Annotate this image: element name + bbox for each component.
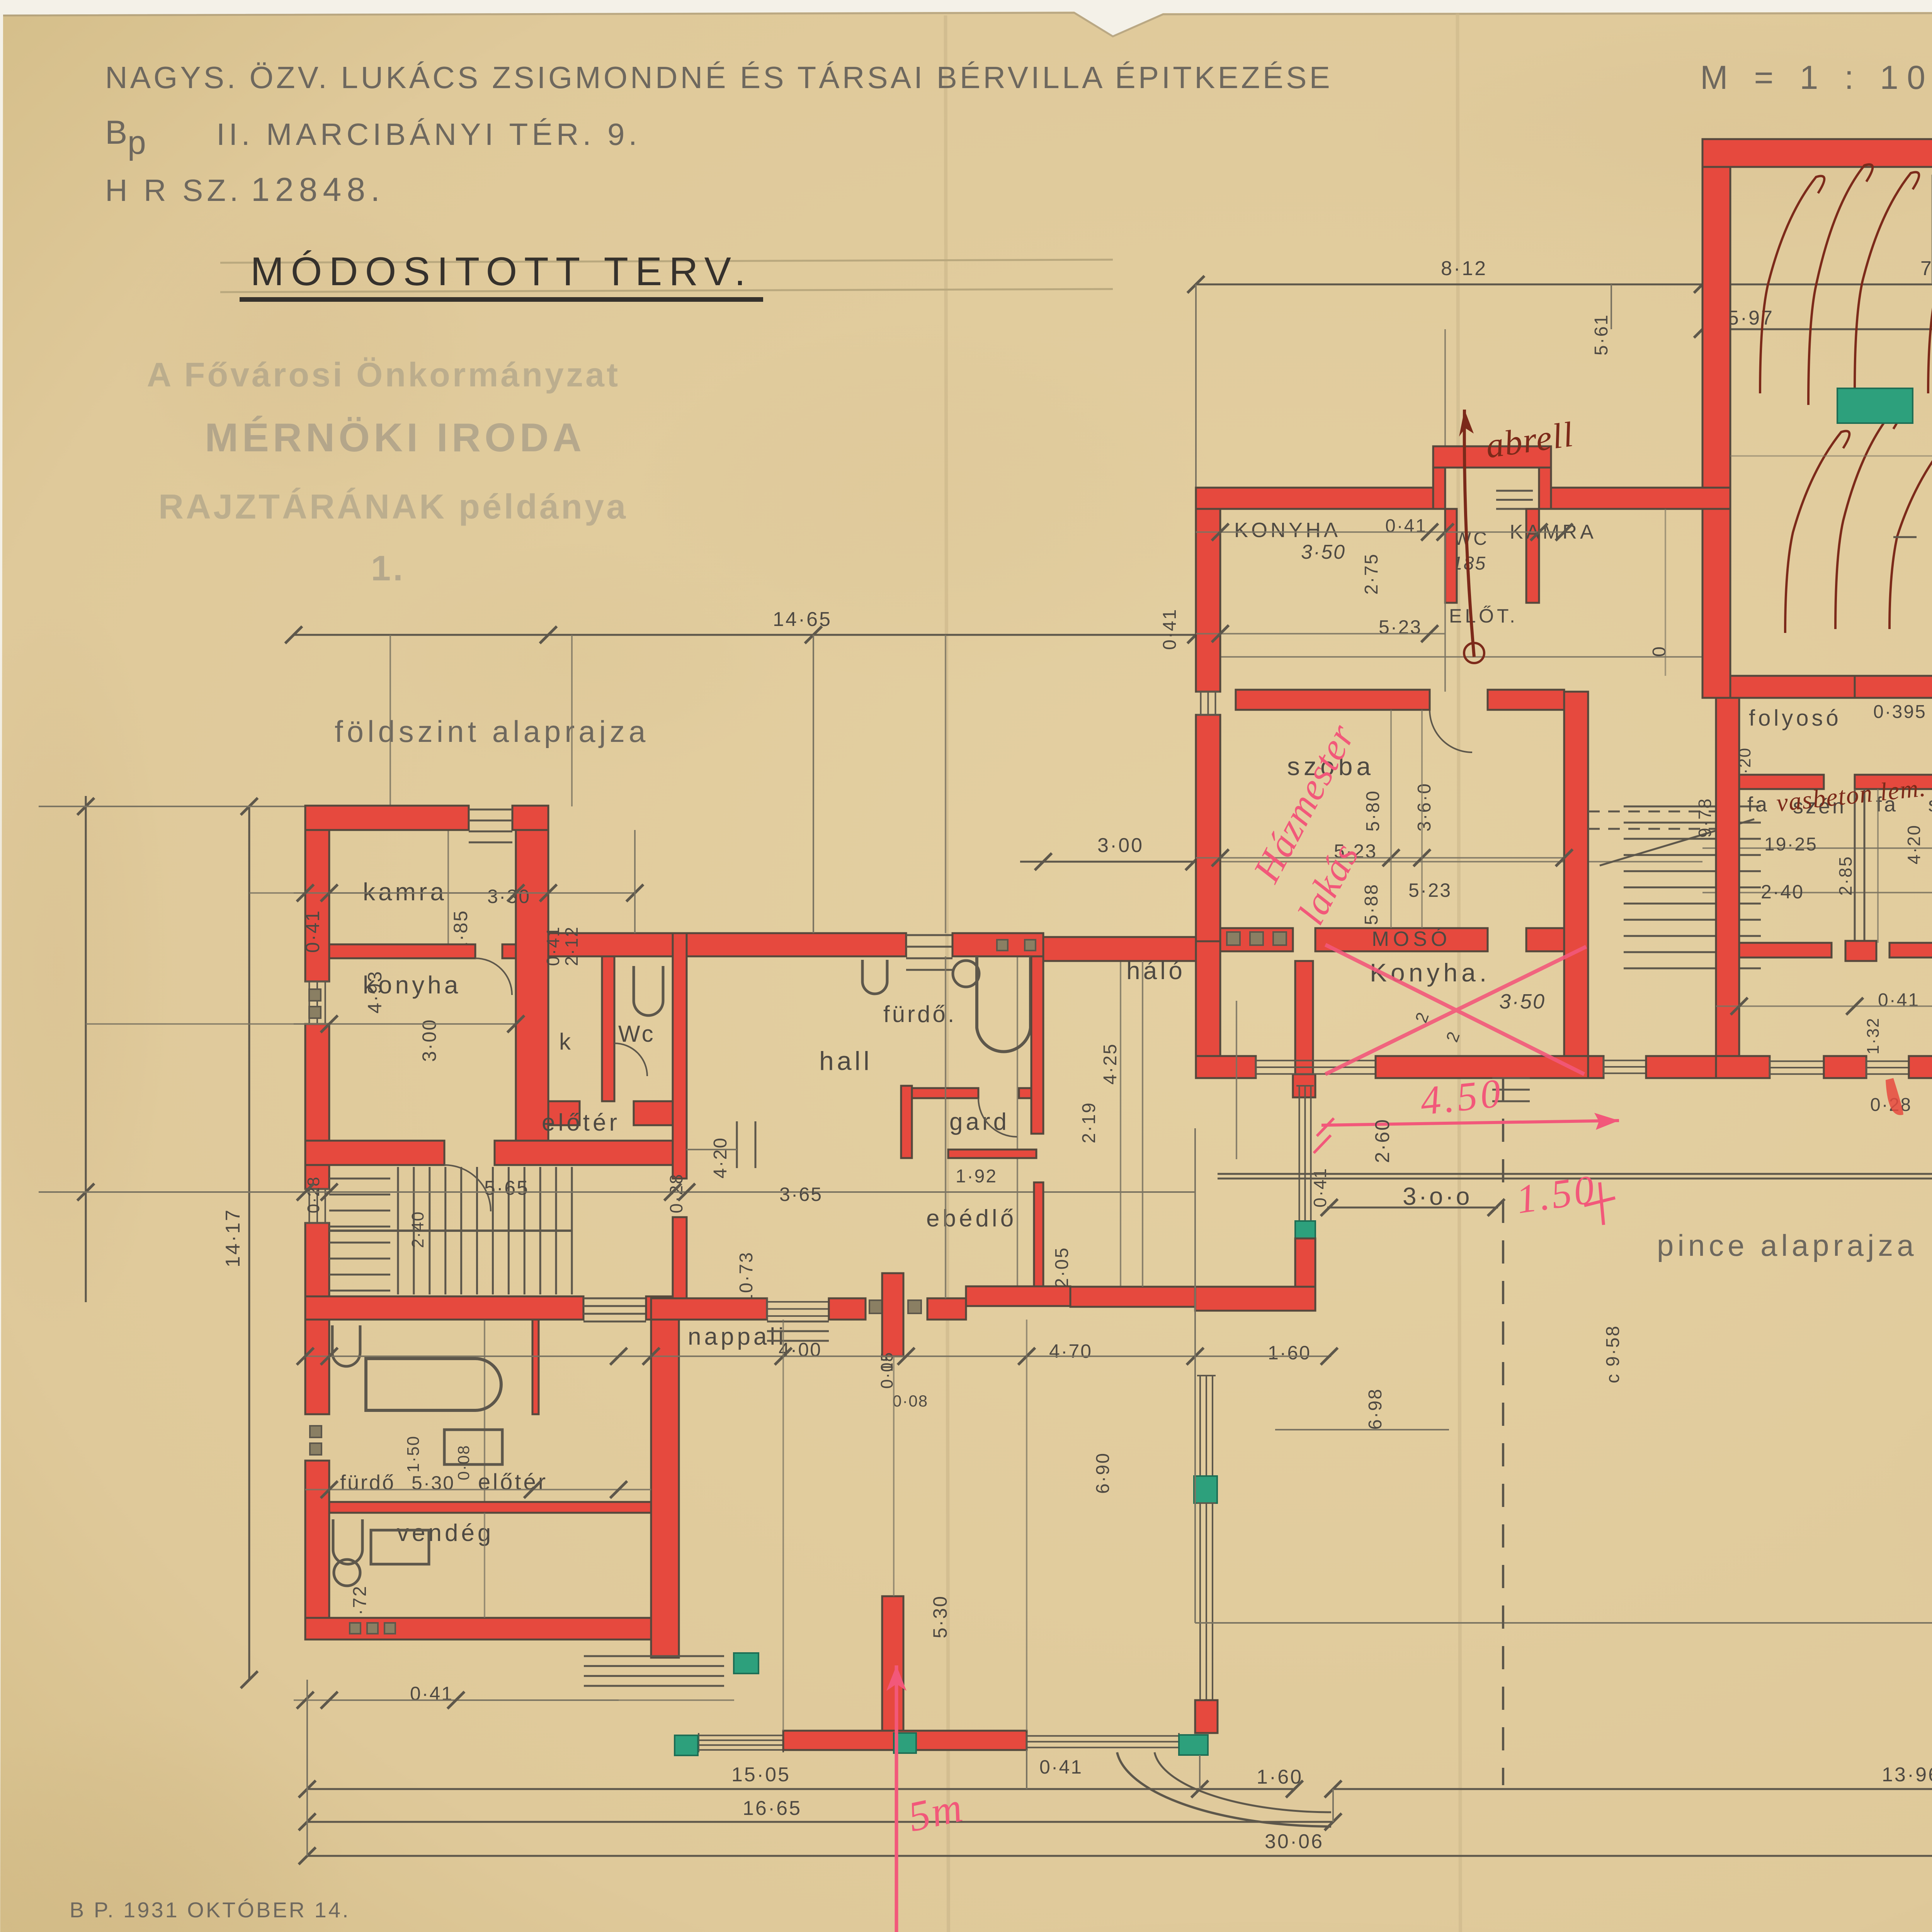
svg-text:fürdő: fürdő xyxy=(340,1471,395,1494)
svg-text:0·41: 0·41 xyxy=(410,1683,453,1704)
svg-text:4·25: 4·25 xyxy=(1100,1043,1121,1085)
svg-text:3·30: 3·30 xyxy=(487,886,531,907)
svg-text:p: p xyxy=(128,124,151,161)
svg-text:NAGYS. ÖZV. LUKÁCS ZSIGMONDNÉ: NAGYS. ÖZV. LUKÁCS ZSIGMONDNÉ ÉS TÁRSAI … xyxy=(105,60,1333,95)
svg-text:6·90: 6·90 xyxy=(1093,1452,1113,1494)
svg-text:MÓDOSITOTT TERV.: MÓDOSITOTT TERV. xyxy=(250,249,752,294)
svg-text:4·20: 4·20 xyxy=(710,1137,731,1179)
svg-text:1·50: 1·50 xyxy=(404,1435,423,1473)
svg-text:0·41: 0·41 xyxy=(302,910,323,953)
svg-text:1·60: 1·60 xyxy=(1257,1766,1303,1788)
svg-text:0·41: 0·41 xyxy=(543,926,563,966)
svg-text:1·32: 1·32 xyxy=(1864,1017,1883,1054)
svg-text:1·92: 1·92 xyxy=(956,1166,997,1187)
svg-text:előtér: előtér xyxy=(542,1109,620,1136)
svg-text:0·28: 0·28 xyxy=(304,1176,323,1213)
svg-text:4·93: 4·93 xyxy=(364,970,386,1014)
svg-text:pince alaprajza: pince alaprajza xyxy=(1657,1228,1918,1262)
svg-text:3·50: 3·50 xyxy=(1301,541,1346,563)
svg-text:előtér: előtér xyxy=(478,1469,548,1495)
svg-text:B P. 1931 OKTÓBER 14.: B P. 1931 OKTÓBER 14. xyxy=(70,1898,350,1922)
svg-text:5·23: 5·23 xyxy=(1379,616,1422,638)
svg-text:9·78: 9·78 xyxy=(1695,798,1715,838)
svg-text:5·30: 5·30 xyxy=(929,1595,951,1638)
svg-text:0: 0 xyxy=(1649,646,1670,657)
svg-text:MÉRNÖKI IRODA: MÉRNÖKI IRODA xyxy=(205,415,585,460)
svg-text:15·05: 15·05 xyxy=(731,1764,791,1786)
svg-text:0·395: 0·395 xyxy=(1873,702,1927,722)
svg-text:5·61: 5·61 xyxy=(1591,314,1612,355)
svg-text:7·85: 7·85 xyxy=(1920,257,1932,280)
svg-text:5·88: 5·88 xyxy=(1361,883,1382,925)
svg-text:KONYHA: KONYHA xyxy=(1234,519,1341,542)
svg-text:3·50: 3·50 xyxy=(1499,990,1546,1013)
svg-text:ELŐT.: ELŐT. xyxy=(1449,605,1518,627)
svg-text:3·00: 3·00 xyxy=(418,1019,440,1062)
svg-text:0·08: 0·08 xyxy=(893,1392,928,1410)
svg-text:szén: szén xyxy=(1928,793,1932,816)
svg-text:0·41: 0·41 xyxy=(1039,1756,1083,1778)
svg-text:hall: hall xyxy=(819,1046,872,1076)
svg-text:14·17: 14·17 xyxy=(222,1208,244,1267)
svg-text:5·65: 5·65 xyxy=(484,1177,529,1199)
svg-text:nappali: nappali xyxy=(688,1323,787,1350)
svg-text:4.50: 4.50 xyxy=(1418,1070,1506,1124)
svg-text:háló: háló xyxy=(1126,957,1185,985)
svg-text:földszint alaprajza: földszint alaprajza xyxy=(335,714,649,748)
svg-text:c 9·58: c 9·58 xyxy=(1603,1325,1623,1383)
svg-text:3·00: 3·00 xyxy=(1097,834,1144,857)
svg-text:14·65: 14·65 xyxy=(773,608,832,631)
svg-text:2·75: 2·75 xyxy=(1361,553,1382,595)
svg-text:8·12: 8·12 xyxy=(1441,257,1487,280)
svg-text:2·12: 2·12 xyxy=(561,926,582,966)
svg-text:2·19: 2·19 xyxy=(1079,1102,1099,1143)
svg-text:3·65: 3·65 xyxy=(779,1184,823,1205)
svg-text:kamra: kamra xyxy=(363,878,447,906)
svg-text:5·23: 5·23 xyxy=(1408,879,1452,901)
svg-text:Wc: Wc xyxy=(618,1021,655,1047)
svg-text:19·25: 19·25 xyxy=(1764,834,1818,855)
svg-text:2·85: 2·85 xyxy=(1835,855,1855,896)
svg-text:3·6·0: 3·6·0 xyxy=(1414,782,1435,832)
svg-text:13·96: 13·96 xyxy=(1882,1764,1932,1786)
svg-text:gard: gard xyxy=(949,1109,1010,1135)
svg-text:vendég: vendég xyxy=(397,1520,494,1546)
svg-text:12848.: 12848. xyxy=(251,171,385,208)
svg-text:0·08: 0·08 xyxy=(454,1445,473,1480)
svg-text:ebédlő: ebédlő xyxy=(926,1205,1017,1232)
svg-text:M = 1 : 100: M = 1 : 100 xyxy=(1700,59,1932,96)
svg-text:0·41: 0·41 xyxy=(1385,516,1427,536)
svg-text:0·41: 0·41 xyxy=(1878,990,1920,1010)
svg-text:RAJZTÁRÁNAK példánya: RAJZTÁRÁNAK példánya xyxy=(158,487,628,526)
svg-text:2·60: 2·60 xyxy=(1371,1118,1394,1163)
svg-text:5·80: 5·80 xyxy=(1363,790,1383,832)
svg-text:MOSÓ: MOSÓ xyxy=(1372,927,1451,951)
svg-text:30·06: 30·06 xyxy=(1265,1830,1324,1853)
svg-text:II. MARCIBÁNYI TÉR. 9.: II. MARCIBÁNYI TÉR. 9. xyxy=(216,117,641,151)
svg-text:k: k xyxy=(559,1029,572,1054)
svg-text:fa: fa xyxy=(1747,793,1769,816)
svg-text:2·40: 2·40 xyxy=(1761,881,1804,903)
svg-text:0·41: 0·41 xyxy=(1160,608,1180,650)
svg-text:4·70: 4·70 xyxy=(1049,1340,1092,1362)
svg-text:0·28: 0·28 xyxy=(666,1173,686,1213)
svg-text:6·98: 6·98 xyxy=(1365,1388,1386,1430)
svg-text:2·40: 2·40 xyxy=(408,1211,427,1248)
svg-text:5·30: 5·30 xyxy=(412,1472,455,1494)
svg-text:16·65: 16·65 xyxy=(743,1797,802,1820)
svg-text:1·60: 1·60 xyxy=(1268,1342,1311,1364)
svg-text:10·73: 10·73 xyxy=(736,1251,757,1304)
svg-text:folyosó: folyosó xyxy=(1749,706,1842,731)
svg-text:3·o·o: 3·o·o xyxy=(1403,1182,1472,1210)
svg-text:1.: 1. xyxy=(371,549,405,588)
svg-text:4·20: 4·20 xyxy=(1904,824,1924,864)
svg-text:A Fővárosi Önkormányzat: A Fővárosi Önkormányzat xyxy=(147,355,620,394)
svg-text:H R SZ.: H R SZ. xyxy=(105,173,242,207)
svg-text:4·00: 4·00 xyxy=(779,1339,822,1361)
svg-text:Konyha.: Konyha. xyxy=(1370,958,1490,987)
